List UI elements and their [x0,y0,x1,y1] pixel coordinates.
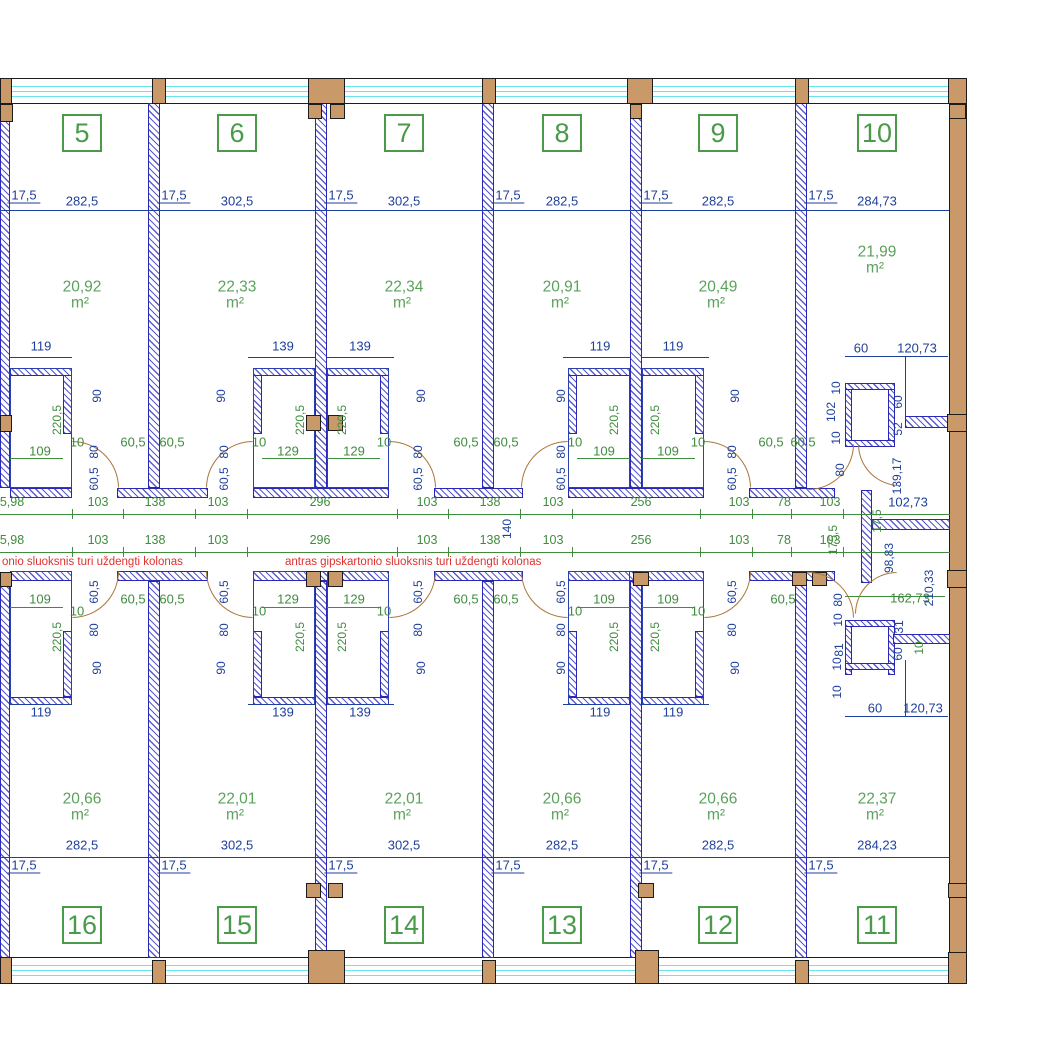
dim-label-rotated: 90 [729,661,741,674]
dim-line-green [0,552,950,553]
column [306,883,321,898]
room-area-unit: m² [226,295,244,311]
room-area-unit: m² [226,807,244,823]
column [948,883,967,898]
column [638,883,654,898]
room-margin-label: 17,5 [639,189,672,204]
chain-dim-label: 103 [417,496,438,509]
room-width-label: 284,23 [857,839,897,852]
dim-label: 60,5 [453,436,478,449]
dim-label: 10 [377,605,391,618]
dim-label: 119 [31,706,52,719]
dim-label-rotated: 60,5 [555,467,567,490]
column [792,572,807,586]
column [795,78,809,104]
dim-label-rotated: 80 [218,445,230,458]
dim-line-blue [845,356,948,357]
room-margin-label: 17,5 [324,189,357,204]
dim-label-rotated: 210,33 [923,570,935,607]
room-area-unit: m² [71,807,89,823]
dim-label: 60,5 [120,593,145,606]
room-margin-label: 17,5 [157,859,190,874]
room-width-label: 282,5 [546,839,579,852]
dim-tick-green [572,509,573,519]
room-width-label: 282,5 [702,195,735,208]
dim-line-blue [845,716,948,717]
construction-note: antras gipskartonio sluoksnis turi užden… [285,556,541,568]
dim-label-rotated: 80 [832,593,844,606]
dim-label-rotated: 60,5 [218,467,230,490]
dim-line-green [577,607,630,608]
dim-label-rotated: 80 [412,445,424,458]
room-width-label: 302,5 [388,839,421,852]
room-margin-label: 17,5 [804,189,837,204]
column [0,104,13,122]
dim-line-blue [327,357,394,358]
dim-line-green [262,607,315,608]
wall-hatched [630,581,642,958]
dim-label-rotated: 17,5 [871,509,883,532]
dim-label-rotated: 220,5 [51,405,63,435]
dim-label: 10 [691,436,705,449]
dim-label: 119 [663,706,684,719]
chain-dim-label: 5,98 [0,496,24,509]
dim-label: 139 [272,340,294,353]
wall-hatched [434,571,523,581]
dim-tick-green [520,509,521,519]
dim-label: 10 [252,436,266,449]
chain-dim-label: 103 [543,534,564,547]
dim-label-rotated: 90 [91,389,103,402]
dim-label: 129 [343,593,365,606]
dim-label-rotated: 102 [825,402,837,422]
chain-dim-label: 256 [631,496,652,509]
dim-label: 10 [691,605,705,618]
column [627,78,653,104]
dim-tick-green [791,509,792,519]
dim-label: 119 [590,706,611,719]
dim-label-rotated: 60,5 [412,467,424,490]
column [0,572,12,587]
dim-label-rotated: 220,5 [336,405,348,435]
dim-label-rotated: 220,5 [649,622,661,652]
dim-label-rotated: 80 [555,445,567,458]
dim-label-rotated: 98,83 [883,543,895,573]
room-number-box: 11 [857,906,897,944]
column [330,104,345,119]
chain-dim-label: 296 [310,534,331,547]
room-margin-label: 17,5 [804,859,837,874]
dim-label-rotated: 90 [555,661,567,674]
dim-label-rotated: 60,5 [412,580,424,603]
room-area-value: 21,99 [858,244,897,260]
dim-tick-green [195,509,196,519]
dim-label-rotated: 175,5 [827,525,839,555]
chain-dim-label: 103 [208,534,229,547]
room-area-value: 20,66 [699,791,738,807]
dim-label: 109 [593,593,615,606]
room-number-box: 9 [698,114,738,152]
wall-hatched [845,620,895,627]
dim-label-rotated: 81 [833,643,845,656]
wall-hatched [861,490,872,583]
room-area-unit: m² [866,807,884,823]
construction-note: onio sluoksnis turi uždengti kolonas [2,556,183,568]
room-area-value: 20,91 [543,279,582,295]
column [947,414,967,432]
dim-label: 139 [349,340,371,353]
room-number-box: 13 [542,906,582,944]
dim-label-rotated: 60,5 [726,580,738,603]
dim-label-rotated: 80 [88,623,100,636]
dim-label: 60,5 [770,593,795,606]
dim-label: 129 [277,445,299,458]
dim-label: 60,5 [790,436,815,449]
room-number-box: 6 [217,114,257,152]
column [949,104,966,119]
dim-label: 10 [252,605,266,618]
room-area-unit: m² [551,807,569,823]
dim-label-rotated: 220,5 [294,622,306,652]
dim-line-green [327,607,380,608]
dim-label: 60,5 [758,436,783,449]
wall-hatched [148,103,160,488]
room-margin-label: 17,5 [324,859,357,874]
chain-dim-label: 103 [417,534,438,547]
room-width-label: 302,5 [221,195,254,208]
dim-line-blue [642,357,709,358]
column [633,572,649,586]
dim-label-rotated: 10 [830,431,842,444]
dim-label-rotated: 10 [831,685,843,698]
chain-dim-label: 296 [310,496,331,509]
dim-line-blue [905,356,906,416]
dim-tick-green [247,509,248,519]
dim-label: 139 [349,706,371,719]
dim-label-rotated: 60,5 [555,580,567,603]
column [306,415,321,431]
room-area-unit: m² [393,807,411,823]
chain-dim-label: 103 [729,496,750,509]
dim-label: 60 [868,702,882,715]
dim-label: 60,5 [453,593,478,606]
dim-tick-green [843,547,844,557]
dim-tick-green [572,547,573,557]
dim-label-rotated: 80 [218,623,230,636]
dim-label: 102,73 [888,496,928,509]
room-area-value: 22,34 [385,279,424,295]
column [0,78,12,104]
column [308,104,322,119]
room-area-value: 22,01 [385,791,424,807]
dim-tick-green [843,509,844,519]
column [328,883,343,898]
dim-label-rotated: 10 [913,641,925,654]
column [328,571,343,587]
wall-hatched [888,383,895,447]
chain-dim-label: 103 [729,534,750,547]
dim-label-rotated: 80 [555,623,567,636]
dim-label-rotated: 31 [893,620,905,633]
dim-label: 109 [657,445,679,458]
chain-dim-label: 138 [145,496,166,509]
exterior-wall-right [949,80,967,983]
wall-hatched [845,383,895,390]
dim-tick-green [700,547,701,557]
room-area-value: 20,49 [699,279,738,295]
chain-dim-label: 103 [88,534,109,547]
room-area-unit: m² [551,295,569,311]
dim-line-green [0,514,950,515]
wall-hatched [795,581,807,958]
dim-label-rotated: 60,5 [88,580,100,603]
chain-dim-label: 103 [208,496,229,509]
room-width-label: 282,5 [546,195,579,208]
dim-tick-green [195,547,196,557]
dim-label: 10 [568,605,582,618]
room-width-label: 302,5 [221,839,254,852]
column [152,960,166,984]
dim-label: 109 [657,593,679,606]
chain-dim-label: 138 [145,534,166,547]
dim-label: 10 [568,436,582,449]
dim-label-rotated: 140 [501,519,513,539]
wall-hatched [482,581,494,958]
dim-label: 60 [854,342,868,355]
column [0,415,12,432]
dim-tick-green [72,509,73,519]
column [152,78,166,104]
column [482,960,496,984]
room-width-label: 282,5 [66,195,99,208]
dim-label: 129 [277,593,299,606]
wall-hatched [845,663,895,670]
room-width-label: 282,5 [66,839,99,852]
dim-tick-green [448,509,449,519]
dim-label-rotated: 90 [729,389,741,402]
dim-label-rotated: 90 [415,661,427,674]
dim-label: 119 [31,340,52,353]
dim-tick-green [397,509,398,519]
dim-label: 120,73 [903,702,943,715]
dim-label: 60,5 [159,436,184,449]
chain-dim-label: 103 [543,496,564,509]
dim-tick-green [791,547,792,557]
dim-label-rotated: 80 [726,623,738,636]
dim-label-rotated: 220,5 [294,405,306,435]
room-margin-label: 17,5 [491,189,524,204]
room-margin-label: 17,5 [7,189,40,204]
chain-dim-label: 256 [631,534,652,547]
dim-label: 119 [590,340,611,353]
chain-dim-label: 78 [777,534,791,547]
dim-label: 129 [343,445,365,458]
dim-line-green [10,607,63,608]
room-number-box: 5 [62,114,102,152]
door-arc [808,444,854,490]
column [948,78,967,104]
dim-label-rotated: 80 [412,623,424,636]
room-number-box: 15 [217,906,257,944]
dim-label-rotated: 60 [892,647,904,660]
chain-dim-label: 103 [820,496,841,509]
chain-dim-label: 138 [480,496,501,509]
wall-hatched [315,581,327,958]
column [0,957,12,984]
dim-label: 60,5 [120,436,145,449]
chain-dim-label: 138 [480,534,501,547]
column [308,950,345,984]
dim-label-rotated: 80 [88,445,100,458]
room-area-unit: m² [707,295,725,311]
dim-label-rotated: 90 [215,389,227,402]
dim-label-rotated: 10 [831,657,843,670]
column [630,104,642,119]
dim-label-rotated: 220,5 [608,405,620,435]
dim-label-rotated: 60 [892,395,904,408]
column [308,78,345,104]
floorplan-canvas: 5,98103138103296103138103256103781035,98… [0,0,1043,1050]
dim-label-rotated: 80 [726,445,738,458]
wall-hatched [630,103,642,488]
room-number-box: 12 [698,906,738,944]
dim-label-rotated: 60,5 [218,580,230,603]
room-margin-label: 17,5 [157,189,190,204]
dim-label: 60,5 [493,593,518,606]
dim-label-rotated: 220,5 [649,405,661,435]
dim-line-blue [0,210,949,211]
column [635,950,659,984]
dim-label: 120,73 [897,342,937,355]
dim-label: 60,5 [493,436,518,449]
room-area-value: 22,01 [218,791,257,807]
wall-hatched [434,488,523,498]
dim-label-rotated: 220,5 [336,622,348,652]
wall-hatched [482,103,494,488]
column [306,571,321,587]
room-width-label: 302,5 [388,195,421,208]
room-number-box: 7 [384,114,424,152]
dim-label: 10 [70,605,84,618]
dim-label: 109 [29,593,51,606]
room-number-box: 14 [384,906,424,944]
chain-dim-label: 78 [777,496,791,509]
room-area-value: 22,37 [858,791,897,807]
column [482,78,496,104]
dim-label-rotated: 80 [834,463,846,476]
dim-label-rotated: 10 [830,381,842,394]
column [947,570,967,588]
dim-label: 10 [70,436,84,449]
room-margin-label: 17,5 [491,859,524,874]
dim-tick-green [247,547,248,557]
dim-label-rotated: 220,5 [51,622,63,652]
dim-tick-green [700,509,701,519]
dim-label-rotated: 90 [555,389,567,402]
dim-line-blue [248,357,315,358]
dim-label-rotated: 90 [91,661,103,674]
dim-label-rotated: 52 [892,422,904,435]
dim-label: 109 [593,445,615,458]
column [948,952,967,984]
wall-hatched [0,581,10,958]
dim-label-rotated: 139,17 [891,458,903,495]
chain-dim-label: 5,98 [0,534,24,547]
dim-tick-green [752,509,753,519]
wall-hatched [795,103,807,488]
dim-label: 119 [663,340,684,353]
dim-label-rotated: 60,5 [88,467,100,490]
room-area-unit: m² [71,295,89,311]
room-area-value: 20,66 [63,791,102,807]
room-width-label: 284,73 [857,195,897,208]
dim-tick-green [123,509,124,519]
room-area-value: 20,92 [63,279,102,295]
room-area-unit: m² [393,295,411,311]
room-number-box: 8 [542,114,582,152]
dim-line-blue [10,357,72,358]
dim-line-blue [563,357,630,358]
dim-label-rotated: 90 [415,389,427,402]
dim-line-green [642,607,695,608]
wall-hatched [148,581,160,958]
room-area-unit: m² [866,260,884,276]
dim-label-rotated: 10 [832,613,844,626]
room-margin-label: 17,5 [639,859,672,874]
dim-label: 60,5 [159,593,184,606]
dim-label-rotated: 60,5 [726,467,738,490]
dim-tick-green [752,547,753,557]
dim-label: 109 [29,445,51,458]
room-margin-label: 17,5 [7,859,40,874]
column [795,960,809,984]
chain-dim-label: 103 [88,496,109,509]
room-area-value: 22,33 [218,279,257,295]
room-width-label: 282,5 [702,839,735,852]
wall-hatched [117,571,208,581]
wall-hatched [905,416,950,428]
room-number-box: 10 [857,114,897,152]
dim-label: 10 [377,436,391,449]
wall-hatched [845,383,852,447]
dim-label-rotated: 90 [215,661,227,674]
room-number-box: 16 [62,906,102,944]
dim-label-rotated: 220,5 [608,622,620,652]
dim-label: 139 [272,706,294,719]
room-area-unit: m² [707,807,725,823]
room-area-value: 20,66 [543,791,582,807]
